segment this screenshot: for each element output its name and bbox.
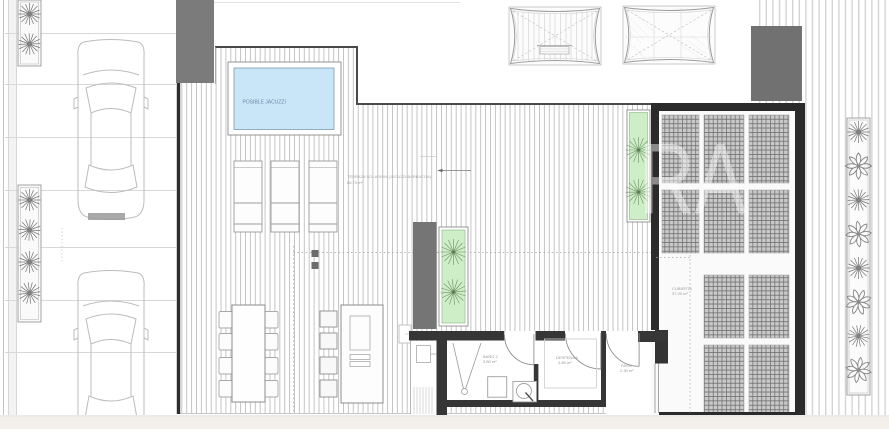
svg-text:3.85 m²: 3.85 m² <box>558 360 572 365</box>
svg-text:2.30 m²: 2.30 m² <box>620 368 634 373</box>
svg-text:88.75 m²: 88.75 m² <box>347 180 363 185</box>
svg-text:POSIBLE JACUZZI: POSIBLE JACUZZI <box>243 100 286 106</box>
svg-text:TERRAZA SOLARIUM (JACUZZI/BARB: TERRAZA SOLARIUM (JACUZZI/BARBACOA) <box>347 174 432 179</box>
svg-text:37.30 m²: 37.30 m² <box>672 291 688 296</box>
svg-text:RA: RA <box>639 123 746 235</box>
svg-text:3.80 m²: 3.80 m² <box>483 359 497 364</box>
